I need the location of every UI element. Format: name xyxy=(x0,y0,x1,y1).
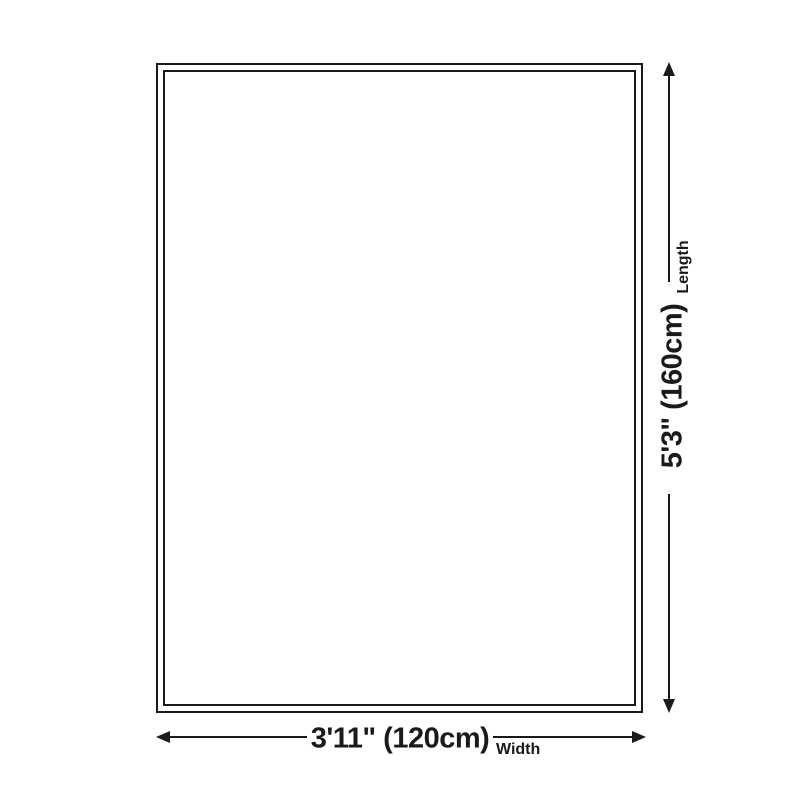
width-line-right xyxy=(493,736,632,738)
arrow-right-icon xyxy=(632,731,646,743)
length-label: Length xyxy=(676,240,692,293)
product-outline-outer xyxy=(156,63,643,713)
width-label: Width xyxy=(496,742,540,758)
size-diagram: Length 5'3" (160cm) 3'11" (120cm) Width xyxy=(0,0,800,800)
product-outline-inner xyxy=(163,70,636,706)
length-line-lower xyxy=(668,494,670,700)
length-value: 5'3" (160cm) xyxy=(659,304,688,469)
arrow-down-icon xyxy=(663,699,675,713)
length-line-upper xyxy=(668,74,670,282)
width-value: 3'11" (120cm) xyxy=(311,725,490,754)
width-line-left xyxy=(168,736,307,738)
